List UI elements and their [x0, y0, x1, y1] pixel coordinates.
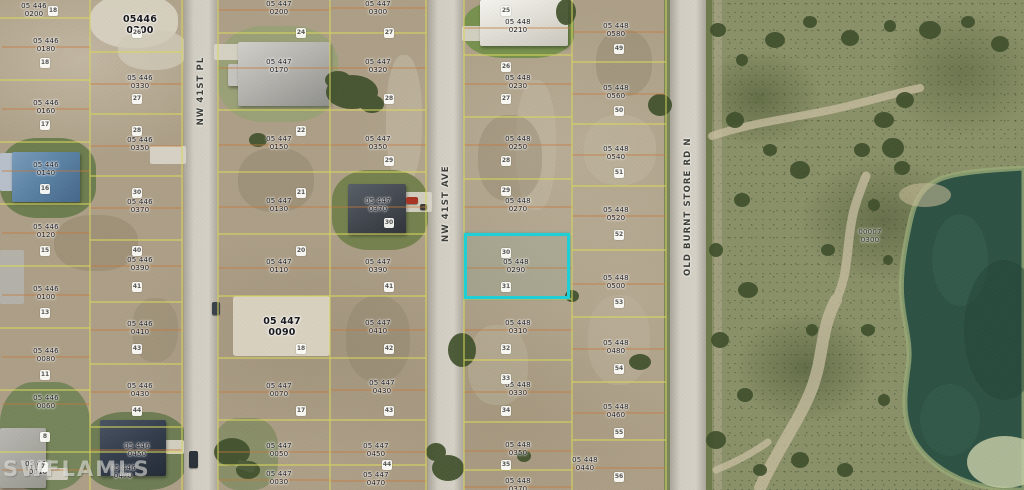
parcel-label: 05 4460370 [118, 198, 162, 215]
lot-number-badge: 56 [614, 472, 624, 482]
parcel-label: 05 4460160 [24, 99, 68, 116]
parcel-label: 05 4470370 [356, 197, 400, 214]
street-label-nw-41st-pl: NW 41ST PL [196, 56, 206, 126]
parcel-label: 05 4470300 [356, 0, 400, 17]
lot-number-badge: 30 [384, 218, 394, 228]
vegetation-area [712, 0, 1024, 490]
lot-number-badge: 51 [614, 168, 624, 178]
parcel-label: 05 4480440 [563, 456, 607, 473]
street-label-old-burnt-store-rd-n: OLD BURNT STORE RD N [683, 146, 693, 276]
parcel-label: 05 4480520 [594, 206, 638, 223]
lot-number-badge: 54 [614, 364, 624, 374]
driveway [214, 44, 240, 60]
lot-number-badge: 28 [132, 126, 142, 136]
parcel-label: 05 4470150 [257, 135, 301, 152]
lot-number-badge: 27 [132, 94, 142, 104]
parcel-label: 05 4480270 [496, 197, 540, 214]
parcel-label: 05 4470200 [257, 0, 301, 17]
parcel-label: 05 4460080 [24, 347, 68, 364]
road-sand-edge [714, 0, 722, 490]
lot-number-badge: 35 [501, 460, 511, 470]
parcel-label: 05 4480480 [594, 339, 638, 356]
parcel-label: 05 4470320 [356, 58, 400, 75]
lot-number-badge: 30 [132, 188, 142, 198]
lot-number-badge: 27 [384, 28, 394, 38]
watermark: SWFLAMLS [3, 457, 151, 481]
parcel-label: 05 4460350 [118, 136, 162, 153]
parcel-label: 05 4470070 [257, 382, 301, 399]
parcel-label: 05 4460140 [24, 161, 68, 178]
parcel-label: 05 4460060 [24, 394, 68, 411]
lot-number-badge: 18 [40, 58, 50, 68]
lot-number-badge: 27 [501, 94, 511, 104]
parcel-label: 05 4470450 [354, 442, 398, 459]
parcel-label: 05 4480350 [496, 441, 540, 458]
car [189, 451, 198, 468]
lot-number-badge: 28 [501, 156, 511, 166]
lot-number-badge: 22 [296, 126, 306, 136]
street-label-nw-41st-ave: NW 41ST AVE [441, 166, 451, 242]
lot-number-badge: 44 [382, 460, 392, 470]
lot-number-badge: 40 [132, 246, 142, 256]
lot-number-badge: 13 [40, 308, 50, 318]
lot-number-badge: 29 [384, 156, 394, 166]
lot-number-badge: 29 [501, 186, 511, 196]
lot-number-badge: 43 [132, 344, 142, 354]
parcel-label: 000070300 [848, 228, 892, 245]
lot-number-badge: 34 [501, 406, 511, 416]
lot-number-badge: 32 [501, 344, 511, 354]
lot-number-badge: 52 [614, 230, 624, 240]
lot-number-badge: 24 [296, 28, 306, 38]
lot-number-badge: 50 [614, 106, 624, 116]
lot-number-badge: 21 [296, 188, 306, 198]
lot-number-badge: 8 [40, 432, 50, 442]
parcel-label: 05 4480500 [594, 274, 638, 291]
lot-number-badge: 55 [614, 428, 624, 438]
lot-number-badge: 30 [501, 248, 511, 258]
parcel-label: 05 4480580 [594, 22, 638, 39]
lot-number-badge: 25 [501, 6, 511, 16]
parcel-label: 05 4470470 [354, 471, 398, 488]
parcel-label: 05 4480210 [496, 18, 540, 35]
parcel-label: 05 4460430 [118, 382, 162, 399]
car [420, 204, 427, 210]
parcel-label: 05 4470390 [356, 258, 400, 275]
parcel-label: 05 4480310 [496, 319, 540, 336]
driveway [462, 26, 482, 41]
parcel-label: 05 4470350 [356, 135, 400, 152]
parcel-label: 05 4460330 [118, 74, 162, 91]
parcel-label: 05 4480540 [594, 145, 638, 162]
parcel-label: 05 4460410 [118, 320, 162, 337]
lot-number-badge: 31 [501, 282, 511, 292]
parcel-label: 05 4480230 [496, 74, 540, 91]
lot-number-badge: 33 [501, 374, 511, 384]
parcel-label: 05 4470110 [257, 258, 301, 275]
parcel-label: 05 4460100 [24, 285, 68, 302]
parcel-label: 05 4480460 [594, 403, 638, 420]
parcel-label-highlighted: 05 4480290 [494, 258, 538, 275]
lot-number-badge: 41 [132, 282, 142, 292]
car [212, 302, 220, 315]
dark-ground-patch [346, 296, 410, 382]
lot-number-badge: 26 [132, 28, 142, 38]
parcel-label: 05 4460180 [24, 37, 68, 54]
lot-number-badge: 17 [40, 120, 50, 130]
parcel-label: 05 4470030 [257, 470, 301, 487]
lot-number-badge: 20 [296, 246, 306, 256]
parcel-label: 05 4470170 [257, 58, 301, 75]
lot-number-badge: 53 [614, 298, 624, 308]
parcel-label: 05 4470410 [356, 319, 400, 336]
red-car [406, 197, 418, 204]
lot-number-badge: 49 [614, 44, 624, 54]
lot-number-badge: 15 [40, 246, 50, 256]
parcel-label: 05 4470090 [254, 316, 310, 338]
lot-number-badge: 44 [132, 406, 142, 416]
parcel-label: 05 4460120 [24, 223, 68, 240]
parcel-label: 05 4480250 [496, 135, 540, 152]
parcel-label: 05 4470130 [257, 197, 301, 214]
parcel-label: 05 4480370 [496, 477, 540, 490]
lot-number-badge: 11 [40, 370, 50, 380]
house-partial-edge [0, 250, 24, 304]
lot-number-badge: 28 [384, 94, 394, 104]
aerial-parcel-map: 05 4460200 05 4460180 05 4460160 05 4460… [0, 0, 1024, 490]
lot-number-badge: 17 [296, 406, 306, 416]
lot-number-badge: 18 [296, 344, 306, 354]
road-nw-41st-ave [428, 0, 464, 490]
lot-number-badge: 26 [501, 62, 511, 72]
lot-number-badge: 16 [40, 184, 50, 194]
parcel-label: 05 4480560 [594, 84, 638, 101]
parcel-label: 05 4470050 [257, 442, 301, 459]
lot-number-badge: 41 [384, 282, 394, 292]
parcel-label: 05 4460390 [118, 256, 162, 273]
parcel-label: 05 4470430 [360, 379, 404, 396]
lot-number-badge: 18 [48, 6, 58, 16]
lot-number-badge: 42 [384, 344, 394, 354]
lot-number-badge: 43 [384, 406, 394, 416]
